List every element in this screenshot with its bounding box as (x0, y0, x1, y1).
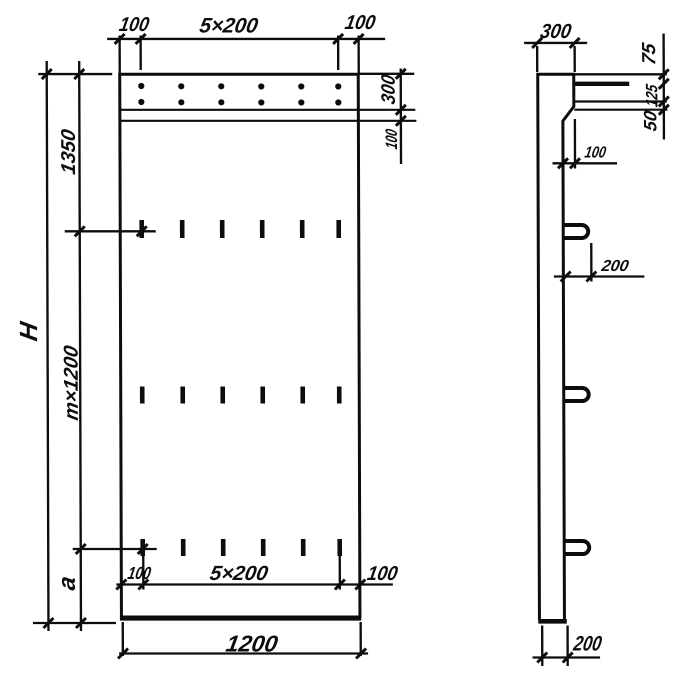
svg-text:100: 100 (365, 563, 399, 585)
svg-text:300: 300 (539, 20, 574, 43)
svg-text:1350: 1350 (58, 127, 80, 176)
svg-text:H: H (15, 319, 43, 343)
svg-text:125: 125 (642, 82, 661, 108)
svg-text:100: 100 (126, 563, 153, 583)
svg-text:1200: 1200 (224, 631, 280, 657)
svg-text:a: a (54, 574, 81, 592)
svg-text:75: 75 (639, 41, 660, 66)
svg-text:300: 300 (378, 73, 400, 106)
svg-text:100: 100 (117, 14, 150, 36)
svg-text:5×200: 5×200 (198, 15, 260, 38)
svg-text:200: 200 (599, 257, 630, 275)
svg-text:5×200: 5×200 (208, 562, 270, 585)
svg-text:100: 100 (343, 12, 377, 34)
svg-text:200: 200 (571, 633, 603, 656)
svg-text:m×1200: m×1200 (61, 343, 83, 422)
svg-text:100: 100 (382, 127, 401, 150)
svg-text:50: 50 (640, 109, 660, 133)
svg-text:100: 100 (583, 144, 607, 162)
